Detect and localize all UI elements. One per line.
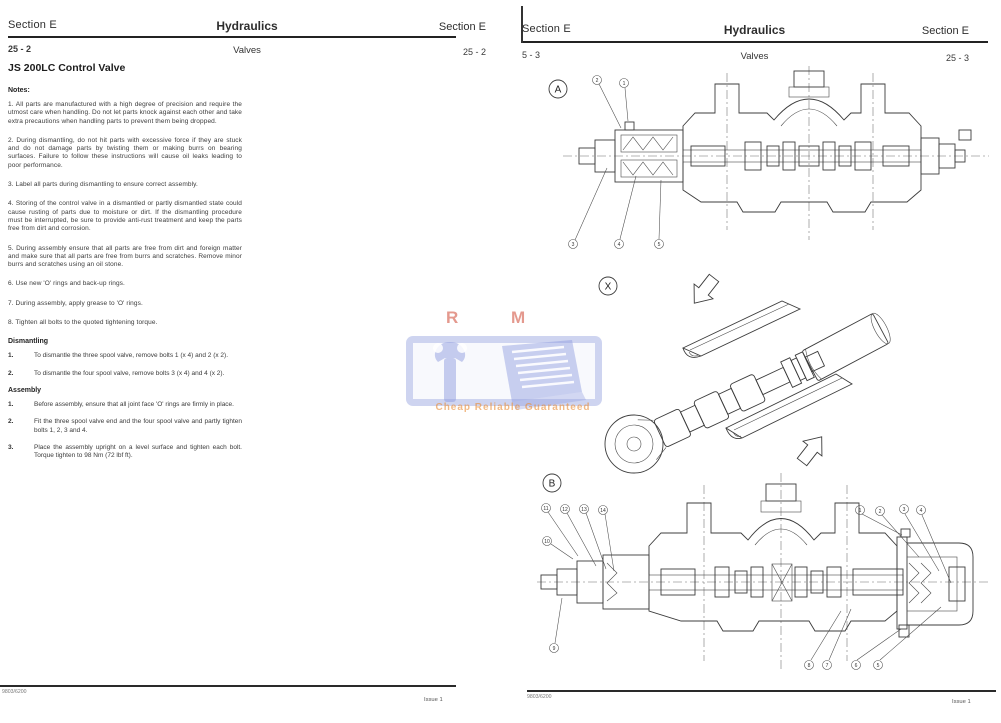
callout-number: 10 bbox=[544, 539, 550, 545]
step-text: Fit the three spool valve end and the fo… bbox=[34, 418, 242, 435]
left-page-header: Section E Hydraulics Section E bbox=[8, 19, 486, 35]
spring-chamber bbox=[621, 135, 677, 152]
scan-page-edge bbox=[521, 6, 523, 43]
spool-end-ring bbox=[615, 425, 653, 463]
callout-leader bbox=[857, 629, 901, 660]
header-section-right: Section E bbox=[922, 25, 969, 37]
figure-b-valve-section: B bbox=[529, 471, 999, 687]
callout-number: 4 bbox=[920, 508, 923, 514]
spool-shaft bbox=[649, 575, 903, 590]
end-cap-sleeve bbox=[907, 557, 957, 611]
step-item: 2. Fit the three spool valve end and the… bbox=[8, 418, 242, 435]
dismantling-heading: Dismantling bbox=[8, 338, 242, 345]
footer-rule bbox=[0, 685, 456, 687]
step-text: Before assembly, ensure that all joint f… bbox=[34, 401, 242, 409]
callout-leader bbox=[880, 607, 941, 660]
plain-cylinder-part bbox=[802, 311, 894, 381]
note-paragraph: 4. Storing of the control valve in a dis… bbox=[8, 200, 242, 233]
callout-number: 1 bbox=[859, 508, 862, 514]
callout-number: 7 bbox=[826, 663, 829, 669]
end-plate-bolt bbox=[901, 529, 910, 537]
callout-number: 13 bbox=[581, 507, 587, 513]
header-rule bbox=[8, 36, 456, 38]
footer-issue: Issue 1 bbox=[952, 699, 971, 705]
end-plate bbox=[897, 537, 907, 629]
subheader-title: Valves bbox=[522, 51, 987, 62]
callout-leader bbox=[605, 514, 614, 571]
callout-number: 4 bbox=[618, 242, 621, 248]
callout-leader bbox=[811, 611, 841, 660]
callout-number: 9 bbox=[553, 646, 556, 652]
callout-leader bbox=[620, 176, 636, 239]
subheader-title: Valves bbox=[8, 45, 486, 56]
step-item: 3. Place the assembly upright on a level… bbox=[8, 444, 242, 461]
callout-number: 3 bbox=[903, 507, 906, 513]
header-rule bbox=[522, 41, 988, 43]
end-cap-housing bbox=[907, 543, 973, 625]
callout-number: 11 bbox=[543, 506, 548, 512]
callout-number: 2 bbox=[879, 509, 882, 515]
insert-direction-arrow-icon bbox=[793, 429, 832, 469]
cap-bolt bbox=[625, 122, 634, 130]
page-number-right: 25 - 3 bbox=[946, 53, 969, 63]
spool-end-face bbox=[605, 415, 663, 473]
document-title: JS 200LC Control Valve bbox=[8, 62, 242, 74]
left-page-subheader: 25 - 2 Valves 25 - 2 bbox=[8, 44, 486, 56]
note-paragraph: 7. During assembly, apply grease to 'O' … bbox=[8, 300, 242, 308]
figure-a-valve-section: A bbox=[531, 68, 1001, 264]
callout-leader bbox=[659, 180, 661, 239]
right-page-header: Section E Hydraulics Section E bbox=[522, 23, 987, 39]
note-paragraph: 5. During assembly ensure that all parts… bbox=[8, 245, 242, 270]
callout-number: 14 bbox=[600, 508, 606, 514]
spring-coil bbox=[623, 162, 673, 175]
note-paragraph: 1. All parts are manufactured with a hig… bbox=[8, 101, 242, 126]
figure-b-label: B bbox=[549, 479, 556, 490]
end-cap-tab bbox=[899, 625, 909, 637]
spool-shaft-body bbox=[638, 339, 831, 460]
text-column: JS 200LC Control Valve Notes: 1. All par… bbox=[8, 62, 242, 469]
callout-number: 2 bbox=[596, 78, 599, 84]
header-title: Hydraulics bbox=[8, 19, 486, 33]
callout-number: 12 bbox=[562, 507, 568, 513]
step-number: 2. bbox=[8, 370, 34, 378]
figure-a-label: A bbox=[555, 85, 562, 96]
right-page-subheader: 5 - 3 Valves 25 - 3 bbox=[522, 50, 987, 62]
step-text: Place the assembly upright on a level su… bbox=[34, 444, 242, 461]
callout-number: 5 bbox=[877, 663, 880, 669]
callout-leader bbox=[829, 609, 851, 660]
spool-end-bore bbox=[627, 437, 641, 451]
notes-heading: Notes: bbox=[8, 87, 242, 94]
callout-number: 6 bbox=[855, 663, 858, 669]
step-item: 1. To dismantle the three spool valve, r… bbox=[8, 352, 242, 360]
valve-body-outline bbox=[649, 503, 897, 631]
end-spring-coil bbox=[909, 563, 919, 603]
step-number: 3. bbox=[8, 444, 34, 461]
step-number: 2. bbox=[8, 418, 34, 435]
figure-x-drawing: X bbox=[586, 268, 1001, 474]
assembly-steps: 1. Before assembly, ensure that all join… bbox=[8, 401, 242, 460]
page-number-right: 25 - 2 bbox=[463, 47, 486, 57]
footer-doc-code: 9803/6200 bbox=[527, 694, 552, 700]
note-paragraph: 3. Label all parts during dismantling to… bbox=[8, 181, 242, 189]
figure-a-drawing: A bbox=[531, 68, 1001, 264]
lower-cradle-block bbox=[726, 374, 852, 439]
insert-direction-arrow-icon bbox=[685, 271, 724, 311]
step-item: 1. Before assembly, ensure that all join… bbox=[8, 401, 242, 409]
valve-body-outline bbox=[683, 84, 921, 212]
spring-coil bbox=[623, 137, 673, 150]
footer-rule bbox=[527, 690, 996, 692]
callout-leader bbox=[599, 84, 621, 128]
callout-leader bbox=[555, 598, 562, 643]
note-paragraph: 2. During dismantling, do not hit parts … bbox=[8, 137, 242, 170]
manual-page-25-3: Section E Hydraulics Section E 5 - 3 Val… bbox=[501, 0, 1001, 723]
right-top-fitting bbox=[959, 130, 971, 140]
footer-doc-code: 9803/6200 bbox=[2, 689, 27, 695]
header-section-right: Section E bbox=[439, 21, 486, 33]
step-text: To dismantle the three spool valve, remo… bbox=[34, 352, 242, 360]
callout-number: 1 bbox=[623, 81, 626, 87]
note-paragraph: 8. Tighten all bolts to the quoted tight… bbox=[8, 319, 242, 327]
callout-number: 5 bbox=[658, 242, 661, 248]
callout-leader bbox=[922, 515, 951, 583]
figure-b-drawing: B bbox=[529, 471, 999, 687]
step-text: To dismantle the four spool valve, remov… bbox=[34, 370, 242, 378]
callout-leader bbox=[551, 544, 573, 559]
figure-x-label: X bbox=[605, 282, 612, 293]
callout-leader bbox=[548, 512, 578, 556]
upper-cradle-block bbox=[683, 301, 800, 357]
step-number: 1. bbox=[8, 401, 34, 409]
header-title: Hydraulics bbox=[522, 23, 987, 37]
callout-leader bbox=[625, 88, 628, 121]
figure-x-spool-exploded: X bbox=[586, 268, 1001, 474]
callout-leader bbox=[575, 168, 607, 240]
footer-issue: Issue 1 bbox=[424, 697, 443, 703]
assembly-heading: Assembly bbox=[8, 387, 242, 394]
callout-number: 3 bbox=[572, 242, 575, 248]
spring-chamber bbox=[621, 160, 677, 177]
callout-number: 8 bbox=[808, 663, 811, 669]
manual-page-25-2: Section E Hydraulics Section E 25 - 2 Va… bbox=[0, 0, 500, 723]
callout-leader bbox=[862, 514, 902, 535]
end-spring-coil bbox=[921, 563, 931, 603]
note-paragraph: 6. Use new 'O' rings and back-up rings. bbox=[8, 280, 242, 288]
step-item: 2. To dismantle the four spool valve, re… bbox=[8, 370, 242, 378]
dismantling-steps: 1. To dismantle the three spool valve, r… bbox=[8, 352, 242, 378]
step-number: 1. bbox=[8, 352, 34, 360]
